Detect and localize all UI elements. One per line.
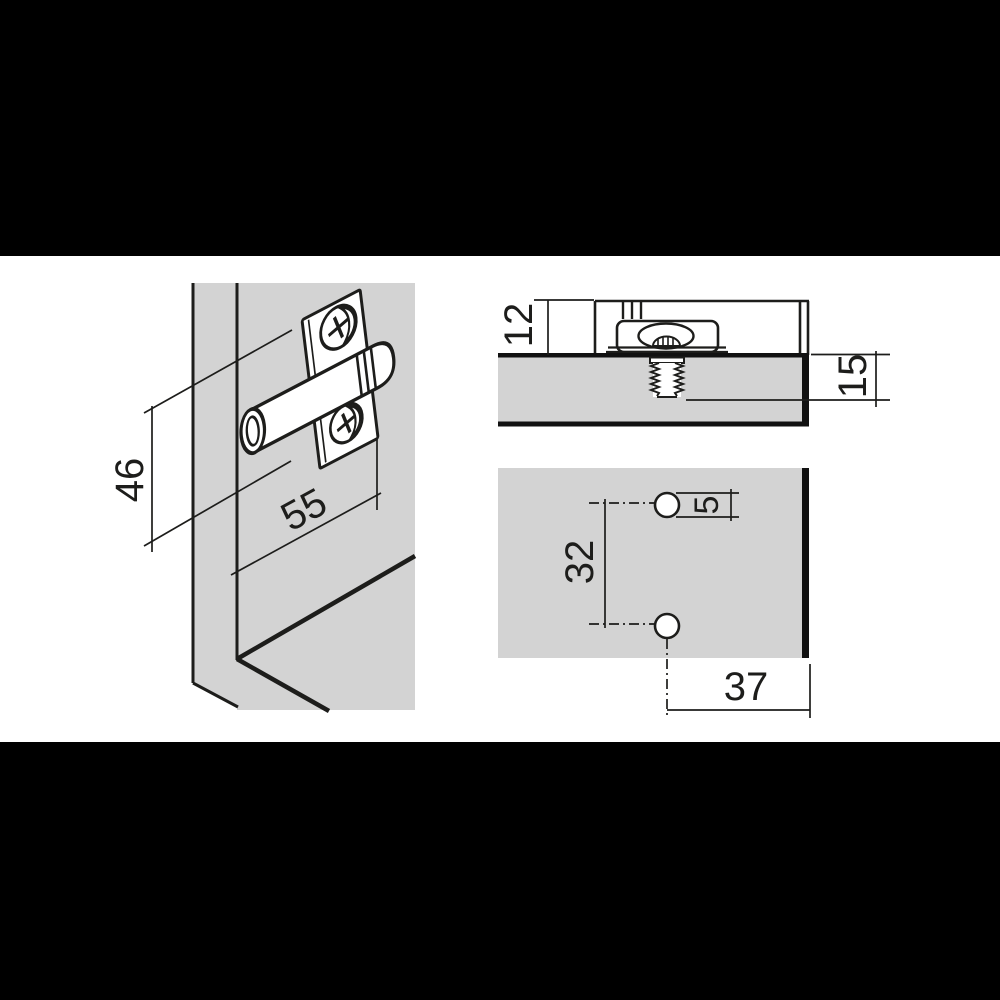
bottom-letterbox-bar [0, 742, 1000, 1000]
drilling-panel-front-edge [802, 468, 809, 658]
dimension-32-label: 32 [558, 540, 602, 585]
dimension-12-lines [534, 300, 594, 355]
dimension-5-label: 5 [688, 496, 726, 515]
technical-drawing-canvas: 46 55 [0, 0, 1000, 1000]
dimension-12-label: 12 [497, 303, 541, 348]
top-letterbox-bar [0, 0, 1000, 256]
screw [650, 358, 684, 398]
dimension-12: 12 [497, 300, 594, 355]
drill-hole-top [655, 493, 679, 517]
section-view: 12 15 [497, 300, 890, 427]
screw-collar [650, 358, 684, 364]
dimension-37-label: 37 [724, 665, 769, 709]
drilling-panel [498, 468, 806, 658]
drilling-view: 5 32 37 [498, 468, 810, 718]
dimension-15-label: 15 [831, 354, 875, 399]
perspective-view: 46 55 [108, 277, 415, 711]
dimension-46-label: 46 [108, 458, 152, 503]
technical-drawing-page: 46 55 [0, 0, 1000, 1000]
drill-hole-bottom [655, 614, 679, 638]
